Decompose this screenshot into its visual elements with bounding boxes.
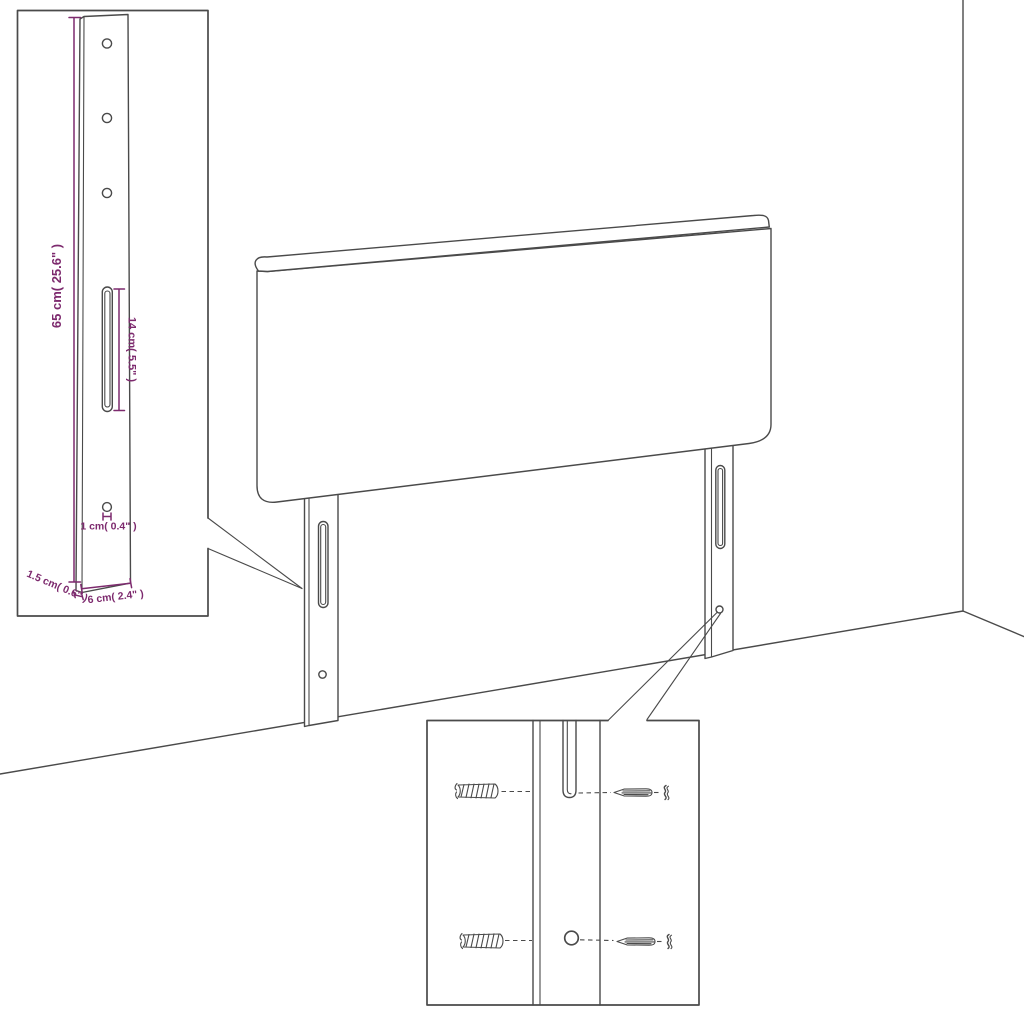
headboard-right-leg (705, 435, 733, 659)
screw-icon (617, 935, 672, 949)
hole-diameter-label: 1 cm( 0.4" ) (80, 521, 136, 533)
callout-lines-hardware-detail (608, 612, 721, 721)
leg-height-label: 65 cm( 25.6" ) (49, 244, 64, 328)
hardware-inset (427, 721, 699, 1006)
headboard-panel (255, 215, 771, 502)
panel-front-face (257, 229, 771, 503)
callout-lines-leg-detail (208, 518, 302, 589)
screw-icon (614, 786, 669, 800)
wall-plug-icon (455, 784, 498, 799)
diagram-canvas: 65 cm( 25.6" ) 14 cm( 5.5" ) 1 cm( 0.4" … (0, 0, 1024, 1024)
floor-line (0, 611, 1024, 774)
slot-length-label: 14 cm( 5.5" ) (126, 317, 138, 382)
headboard-left-leg (305, 487, 339, 727)
wall-plug-icon (460, 934, 503, 949)
hardware-leg-strip (533, 721, 600, 1006)
dimension-leg-height: 65 cm( 25.6" ) (49, 18, 81, 583)
hardware-slot (563, 721, 576, 798)
leg-width-label: 6 cm( 2.4" ) (87, 588, 144, 606)
hardware-alignment-dashes (502, 792, 614, 941)
hardware-slot-inner (567, 721, 571, 794)
hardware-hole (565, 931, 579, 945)
headboard-dimension-diagram: 65 cm( 25.6" ) 14 cm( 5.5" ) 1 cm( 0.4" … (0, 0, 1024, 1024)
leg-dimension-inset: 65 cm( 25.6" ) 14 cm( 5.5" ) 1 cm( 0.4" … (18, 11, 209, 617)
